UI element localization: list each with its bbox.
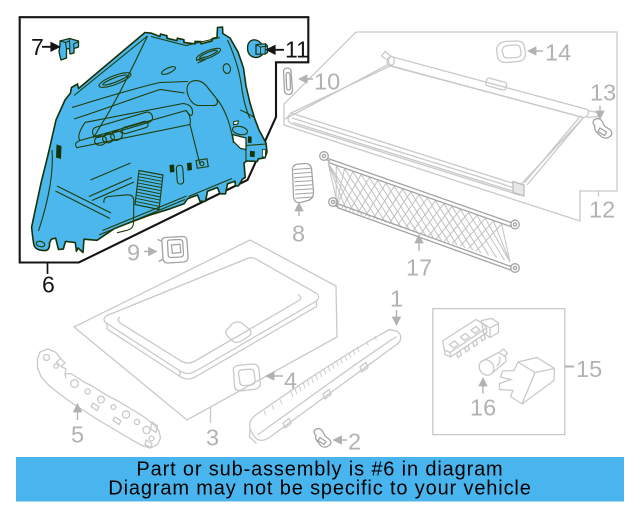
svg-text:9: 9 [127,240,140,266]
svg-text:13: 13 [590,80,616,106]
svg-text:1: 1 [390,286,403,312]
svg-text:Diagram may not be specific to: Diagram may not be specific to your vehi… [108,477,531,499]
svg-text:7: 7 [31,34,44,60]
svg-text:12: 12 [589,197,615,223]
svg-text:15: 15 [576,356,602,382]
svg-text:5: 5 [71,422,84,448]
svg-text:11: 11 [285,37,309,63]
svg-text:14: 14 [545,40,571,66]
svg-text:6: 6 [42,272,55,298]
svg-text:16: 16 [470,395,496,421]
svg-text:8: 8 [292,221,305,247]
svg-text:17: 17 [406,255,432,281]
svg-text:10: 10 [314,69,340,95]
svg-text:3: 3 [206,425,219,451]
svg-text:2: 2 [348,429,361,455]
